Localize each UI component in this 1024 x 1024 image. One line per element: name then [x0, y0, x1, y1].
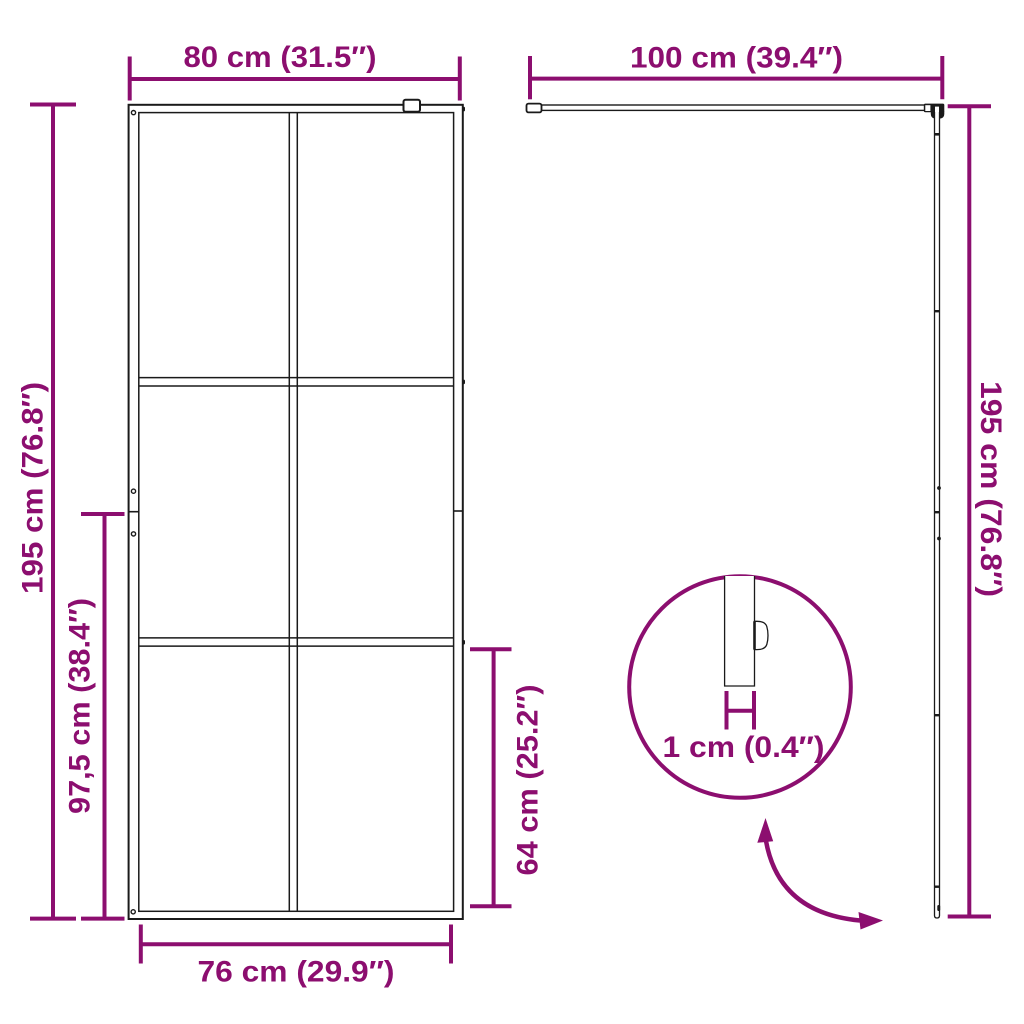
svg-text:195 cm (76.8″): 195 cm (76.8″) — [974, 381, 1007, 597]
svg-text:195 cm (76.8″): 195 cm (76.8″) — [17, 382, 50, 594]
svg-text:100 cm (39.4″): 100 cm (39.4″) — [630, 42, 843, 75]
svg-text:80 cm (31.5″): 80 cm (31.5″) — [184, 41, 377, 74]
svg-text:64 cm (25.2″): 64 cm (25.2″) — [512, 685, 545, 876]
svg-text:1 cm (0.4″): 1 cm (0.4″) — [663, 731, 825, 764]
svg-text:76 cm (29.9″): 76 cm (29.9″) — [198, 956, 395, 989]
svg-text:97,5 cm (38.4″): 97,5 cm (38.4″) — [64, 598, 97, 814]
